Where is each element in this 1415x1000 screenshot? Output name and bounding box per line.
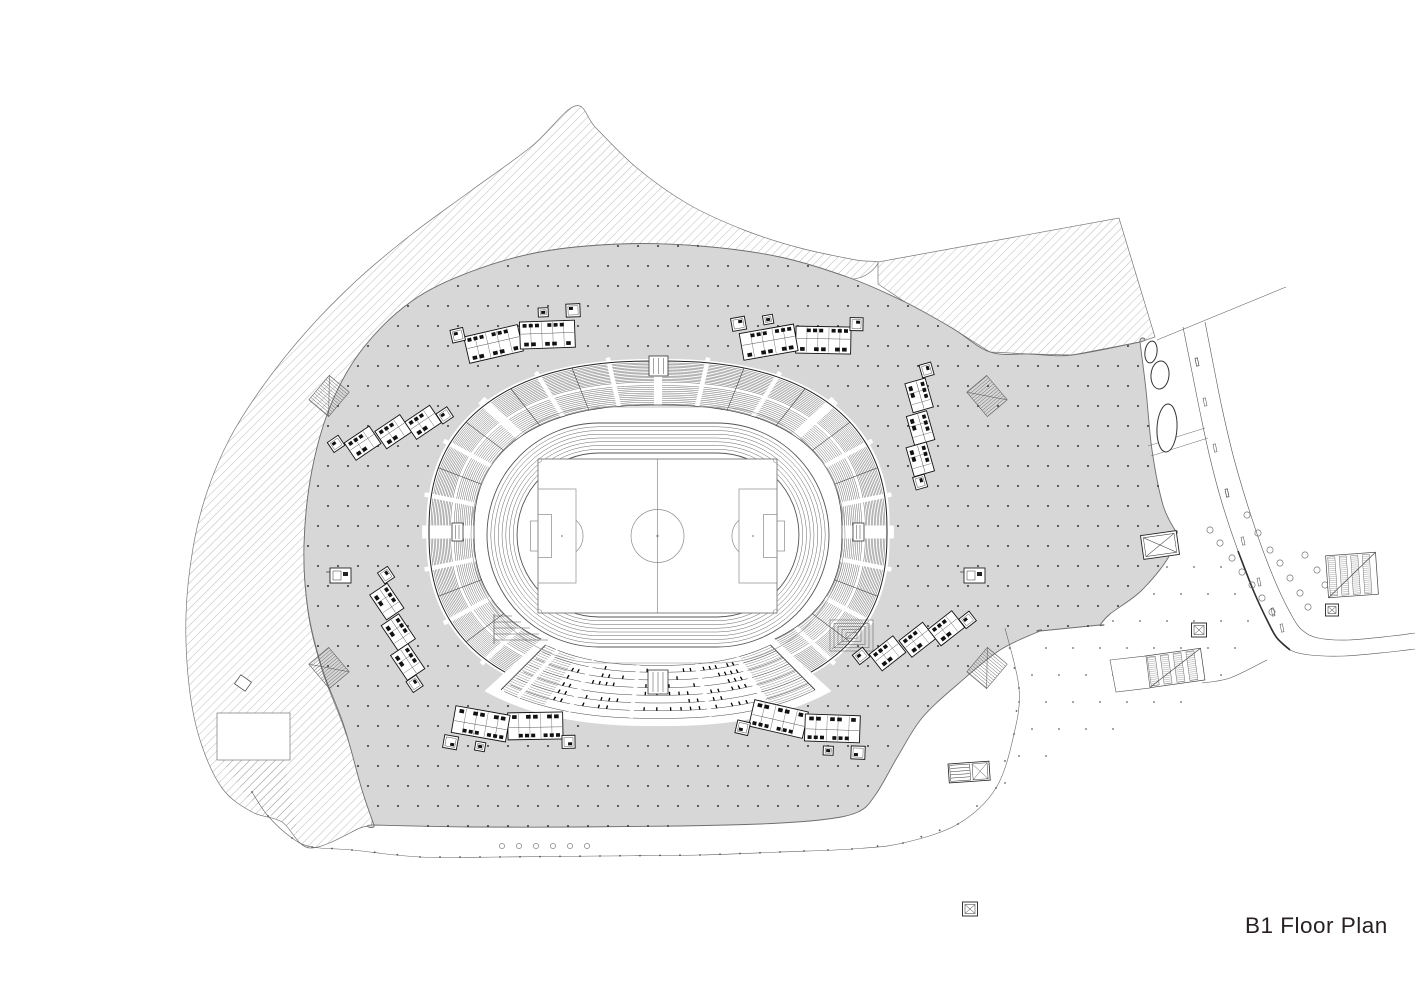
drawing-title: B1 Floor Plan	[1245, 913, 1388, 939]
soccer-field	[531, 459, 785, 613]
floor-plan-canvas	[0, 0, 1415, 1000]
floor-plan-page: B1 Floor Plan	[0, 0, 1415, 1000]
